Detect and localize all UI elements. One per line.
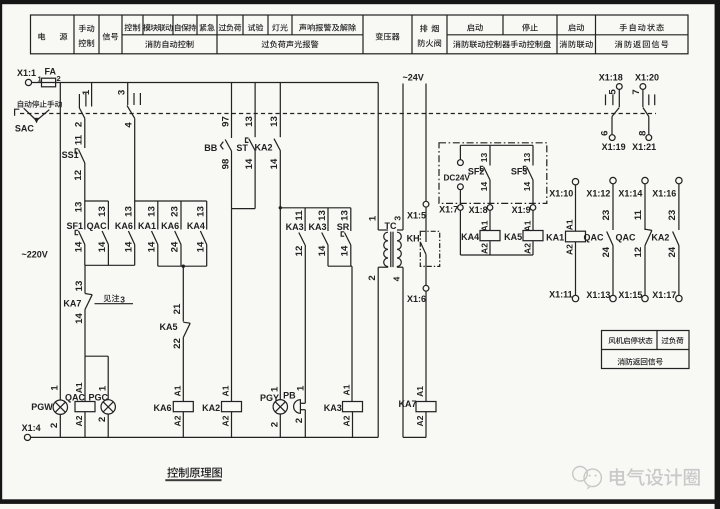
svg-text:13: 13 <box>147 206 158 217</box>
svg-text:FA: FA <box>45 67 57 77</box>
svg-text:13: 13 <box>522 153 532 163</box>
svg-text:23: 23 <box>170 206 181 217</box>
svg-text:2: 2 <box>294 418 305 423</box>
svg-text:14: 14 <box>97 241 108 252</box>
svg-text:~24V: ~24V <box>403 73 424 83</box>
svg-text:SF1: SF1 <box>66 221 83 231</box>
svg-text:KA2: KA2 <box>651 232 669 242</box>
svg-text:KA3: KA3 <box>308 222 326 232</box>
svg-text:X1:21: X1:21 <box>632 142 656 152</box>
svg-text:SAC: SAC <box>15 124 35 134</box>
svg-text:14: 14 <box>522 182 532 192</box>
svg-text:SR: SR <box>337 222 350 232</box>
svg-text:X1:14: X1:14 <box>618 189 642 199</box>
svg-text:1: 1 <box>295 385 306 391</box>
svg-text:A1: A1 <box>480 220 490 231</box>
svg-text:X1:6: X1:6 <box>407 294 426 304</box>
svg-text:QAC: QAC <box>584 232 605 242</box>
svg-text:23: 23 <box>601 210 612 221</box>
svg-text:2: 2 <box>270 422 281 427</box>
svg-text:PGC: PGC <box>88 392 108 402</box>
svg-text:2: 2 <box>57 74 61 83</box>
svg-text:13: 13 <box>479 153 489 163</box>
svg-text:X1:10: X1:10 <box>549 188 573 198</box>
svg-text:KA2: KA2 <box>202 403 220 413</box>
svg-text:7: 7 <box>631 89 642 94</box>
svg-text:1: 1 <box>270 386 281 392</box>
svg-text:11: 11 <box>294 210 305 221</box>
svg-text:14: 14 <box>74 241 85 252</box>
svg-text:14: 14 <box>269 158 280 169</box>
svg-text:X1:1: X1:1 <box>17 68 36 78</box>
svg-text:X1:20: X1:20 <box>635 72 659 82</box>
svg-text:KA4: KA4 <box>461 232 479 242</box>
svg-text:A1: A1 <box>415 386 425 397</box>
svg-text:5: 5 <box>607 89 618 95</box>
svg-text:KH: KH <box>407 233 420 243</box>
svg-text:A2: A2 <box>523 243 533 254</box>
svg-text:A2: A2 <box>172 415 182 426</box>
svg-text:13: 13 <box>123 206 134 217</box>
svg-text:14: 14 <box>147 241 158 252</box>
svg-text:X1:4: X1:4 <box>22 423 41 433</box>
svg-text:14: 14 <box>74 313 85 324</box>
svg-text:A2: A2 <box>480 243 490 254</box>
svg-text:13: 13 <box>97 206 108 217</box>
svg-text:1: 1 <box>368 215 379 221</box>
svg-text:2: 2 <box>367 275 378 280</box>
svg-text:14: 14 <box>479 182 489 192</box>
svg-text:1: 1 <box>81 89 92 95</box>
svg-text:KA1: KA1 <box>546 232 564 242</box>
svg-text:14: 14 <box>244 158 255 169</box>
svg-text:97: 97 <box>220 116 231 127</box>
svg-text:13: 13 <box>74 281 85 292</box>
svg-text:4: 4 <box>123 122 134 128</box>
svg-text:13: 13 <box>195 206 206 217</box>
svg-text:KA6: KA6 <box>115 221 133 231</box>
svg-text:22: 22 <box>172 338 183 349</box>
svg-text:A2: A2 <box>415 415 425 426</box>
svg-text:21: 21 <box>172 303 183 314</box>
svg-text:SF2: SF2 <box>468 167 485 177</box>
svg-text:13: 13 <box>340 210 351 221</box>
svg-text:X1:15: X1:15 <box>618 290 642 300</box>
svg-text:KA5: KA5 <box>504 232 522 242</box>
svg-text:11: 11 <box>633 209 644 220</box>
svg-text:6: 6 <box>599 131 610 136</box>
svg-text:A2: A2 <box>221 415 231 426</box>
svg-text:KA5: KA5 <box>159 322 177 332</box>
svg-text:A2: A2 <box>74 415 84 426</box>
svg-text:PB: PB <box>283 390 296 400</box>
svg-text:13: 13 <box>244 116 255 127</box>
svg-text:KA6: KA6 <box>153 403 171 413</box>
svg-text:A2: A2 <box>565 244 575 255</box>
svg-text:24: 24 <box>601 246 612 257</box>
svg-text:KA2: KA2 <box>254 143 272 153</box>
svg-text:1: 1 <box>38 75 42 84</box>
svg-text:X1:7: X1:7 <box>439 205 458 215</box>
svg-text:11: 11 <box>74 134 85 145</box>
svg-text:SS1: SS1 <box>62 150 79 160</box>
svg-text:3: 3 <box>120 294 125 304</box>
svg-text:14: 14 <box>340 245 351 256</box>
svg-text:12: 12 <box>73 170 84 181</box>
svg-text:X1:13: X1:13 <box>586 290 610 300</box>
svg-text:1: 1 <box>97 385 108 391</box>
svg-text:ST: ST <box>236 143 248 153</box>
svg-text:A1: A1 <box>172 385 182 396</box>
svg-text:13: 13 <box>269 116 280 127</box>
svg-text:98: 98 <box>220 158 231 169</box>
svg-text:23: 23 <box>667 210 678 221</box>
svg-text:13: 13 <box>317 210 328 221</box>
svg-text:QAC: QAC <box>87 221 108 231</box>
svg-text:KA7: KA7 <box>63 299 81 309</box>
svg-text:X1:5: X1:5 <box>407 211 426 221</box>
svg-text:KA3: KA3 <box>286 222 304 232</box>
svg-text:14: 14 <box>123 241 134 252</box>
svg-text:X1:16: X1:16 <box>652 189 676 199</box>
svg-text:KA7: KA7 <box>398 399 416 409</box>
svg-text:X1:19: X1:19 <box>602 142 626 152</box>
svg-text:8: 8 <box>638 130 649 136</box>
svg-text:14: 14 <box>195 241 206 252</box>
svg-text:X1:8: X1:8 <box>469 205 488 215</box>
svg-text:1: 1 <box>49 385 60 391</box>
svg-text:14: 14 <box>317 245 328 256</box>
svg-text:X1:17: X1:17 <box>652 290 676 300</box>
svg-text:12: 12 <box>294 246 305 257</box>
svg-text:A2: A2 <box>341 415 351 426</box>
svg-text:4: 4 <box>392 276 402 281</box>
svg-text:3: 3 <box>117 90 128 95</box>
svg-text:TC: TC <box>385 221 397 231</box>
svg-text:KA4: KA4 <box>187 221 205 231</box>
svg-text:3: 3 <box>392 216 402 221</box>
svg-text:12: 12 <box>633 247 644 258</box>
svg-text:QAC: QAC <box>616 232 637 242</box>
svg-text:QAC: QAC <box>65 392 86 402</box>
svg-text:A1: A1 <box>341 384 351 395</box>
svg-text:PGW: PGW <box>31 402 53 412</box>
svg-text:24: 24 <box>667 246 678 257</box>
svg-text:2: 2 <box>97 417 108 422</box>
svg-text:A1: A1 <box>565 219 575 230</box>
svg-text:24: 24 <box>170 241 181 252</box>
svg-text:BB: BB <box>204 143 217 153</box>
svg-text:2: 2 <box>49 423 60 428</box>
svg-text:X1:11: X1:11 <box>549 290 573 300</box>
svg-text:2: 2 <box>74 122 85 127</box>
svg-text:A1: A1 <box>523 220 533 231</box>
svg-text:DC24V: DC24V <box>444 174 471 183</box>
svg-text:~220V: ~220V <box>22 250 48 260</box>
svg-text:KA1: KA1 <box>138 221 156 231</box>
svg-text:X1:18: X1:18 <box>599 72 623 82</box>
svg-text:KA3: KA3 <box>324 403 342 413</box>
svg-text:PGY: PGY <box>260 393 279 403</box>
svg-text:13: 13 <box>74 202 85 213</box>
svg-text:X1:12: X1:12 <box>586 189 610 199</box>
svg-text:SF3: SF3 <box>511 167 528 177</box>
svg-text:A1: A1 <box>221 385 231 396</box>
svg-text:KA6: KA6 <box>161 221 179 231</box>
svg-text:X1:9: X1:9 <box>512 205 531 215</box>
